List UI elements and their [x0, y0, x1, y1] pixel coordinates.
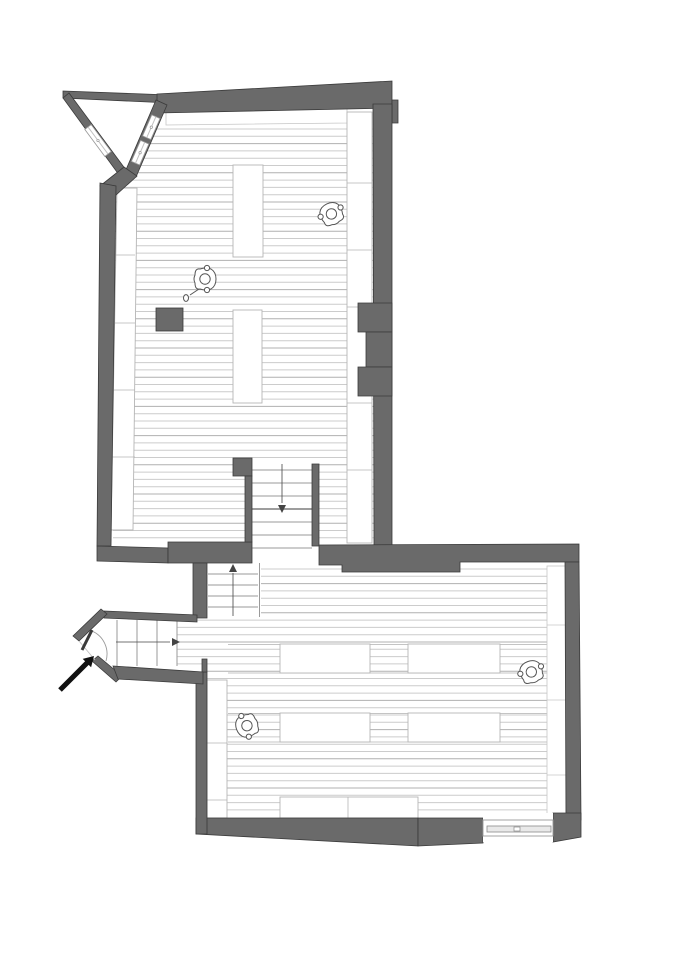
person-figure [184, 265, 217, 301]
floor-plan [0, 0, 679, 960]
person-body [314, 198, 348, 229]
bench [207, 680, 227, 818]
stair-direction-arrowhead [172, 638, 180, 646]
table [408, 644, 500, 673]
floor-plan-page [0, 0, 679, 960]
person-body [515, 657, 548, 687]
wall-segment [312, 464, 319, 546]
wall-segment [202, 659, 207, 672]
wall-corridor-south [113, 666, 203, 684]
wall-right-lower [565, 562, 581, 820]
window-mullion-dot [97, 139, 99, 141]
entrance-direction-arrow [58, 656, 94, 692]
wall-segment [63, 91, 170, 103]
wall-stair-newel [233, 458, 252, 476]
table [233, 310, 262, 403]
wall-bottom [418, 818, 483, 846]
table [408, 713, 500, 742]
bench [280, 797, 418, 818]
wall-segment [193, 563, 207, 618]
table [280, 713, 370, 742]
person-hand-object [184, 295, 189, 302]
wall-segment [245, 476, 252, 542]
window-mullion-dot [150, 126, 152, 128]
person-body [194, 265, 216, 292]
stove [156, 308, 183, 331]
stair-direction-arrowhead [229, 564, 237, 572]
table [280, 644, 370, 673]
entrance-arrow [58, 656, 94, 692]
wall-bottom [196, 818, 418, 846]
table [233, 165, 263, 257]
wall-segment [392, 100, 398, 123]
wall-vestibule-north [104, 611, 197, 622]
wall-pilaster [358, 303, 392, 332]
wall-top-lower [319, 544, 579, 572]
floorboards-lower-hall [172, 569, 570, 810]
door-swing-arc [92, 631, 107, 661]
wall-segment [168, 542, 252, 563]
wall-bottom-corner [553, 813, 581, 842]
wall-left-lower [196, 672, 207, 834]
wall-base-strip [547, 566, 566, 816]
window-mullion-dot [139, 152, 141, 154]
wall-segment [366, 332, 392, 367]
wall-pilaster [358, 367, 392, 396]
wall-segment [97, 546, 168, 563]
wall-segment [157, 81, 392, 113]
person-figure [314, 198, 348, 229]
window-handle [514, 827, 520, 831]
person-figure [515, 657, 548, 687]
